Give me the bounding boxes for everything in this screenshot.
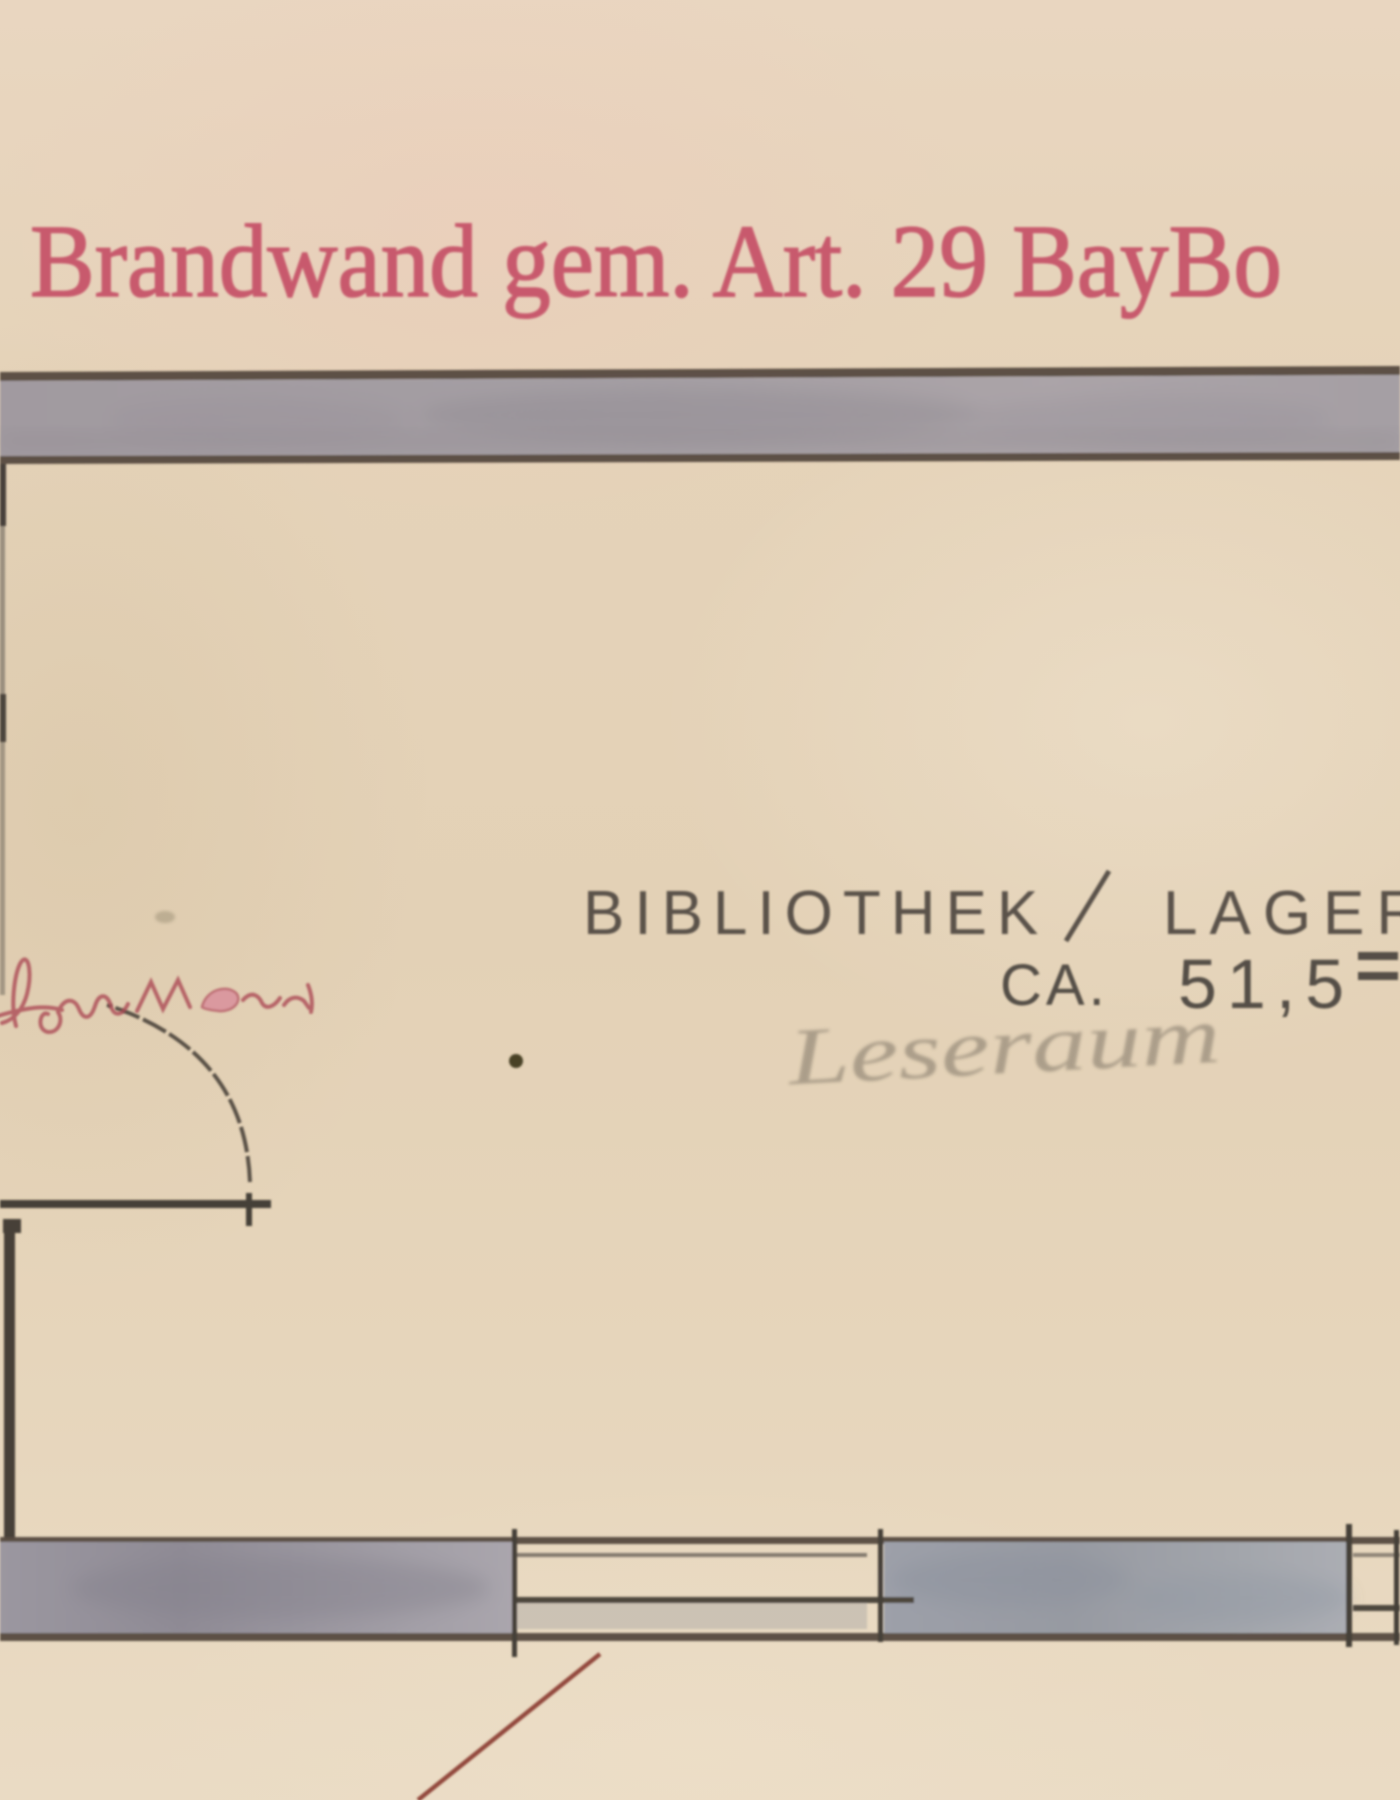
svg-text:LAGER: LAGER (1163, 879, 1400, 948)
svg-text:Brandwand gem. Art. 29 BayBo: Brandwand gem. Art. 29 BayBo (30, 204, 1282, 319)
svg-text:BIBLIOTHEK: BIBLIOTHEK (583, 879, 1048, 948)
svg-text:Leseraum: Leseraum (785, 992, 1222, 1103)
